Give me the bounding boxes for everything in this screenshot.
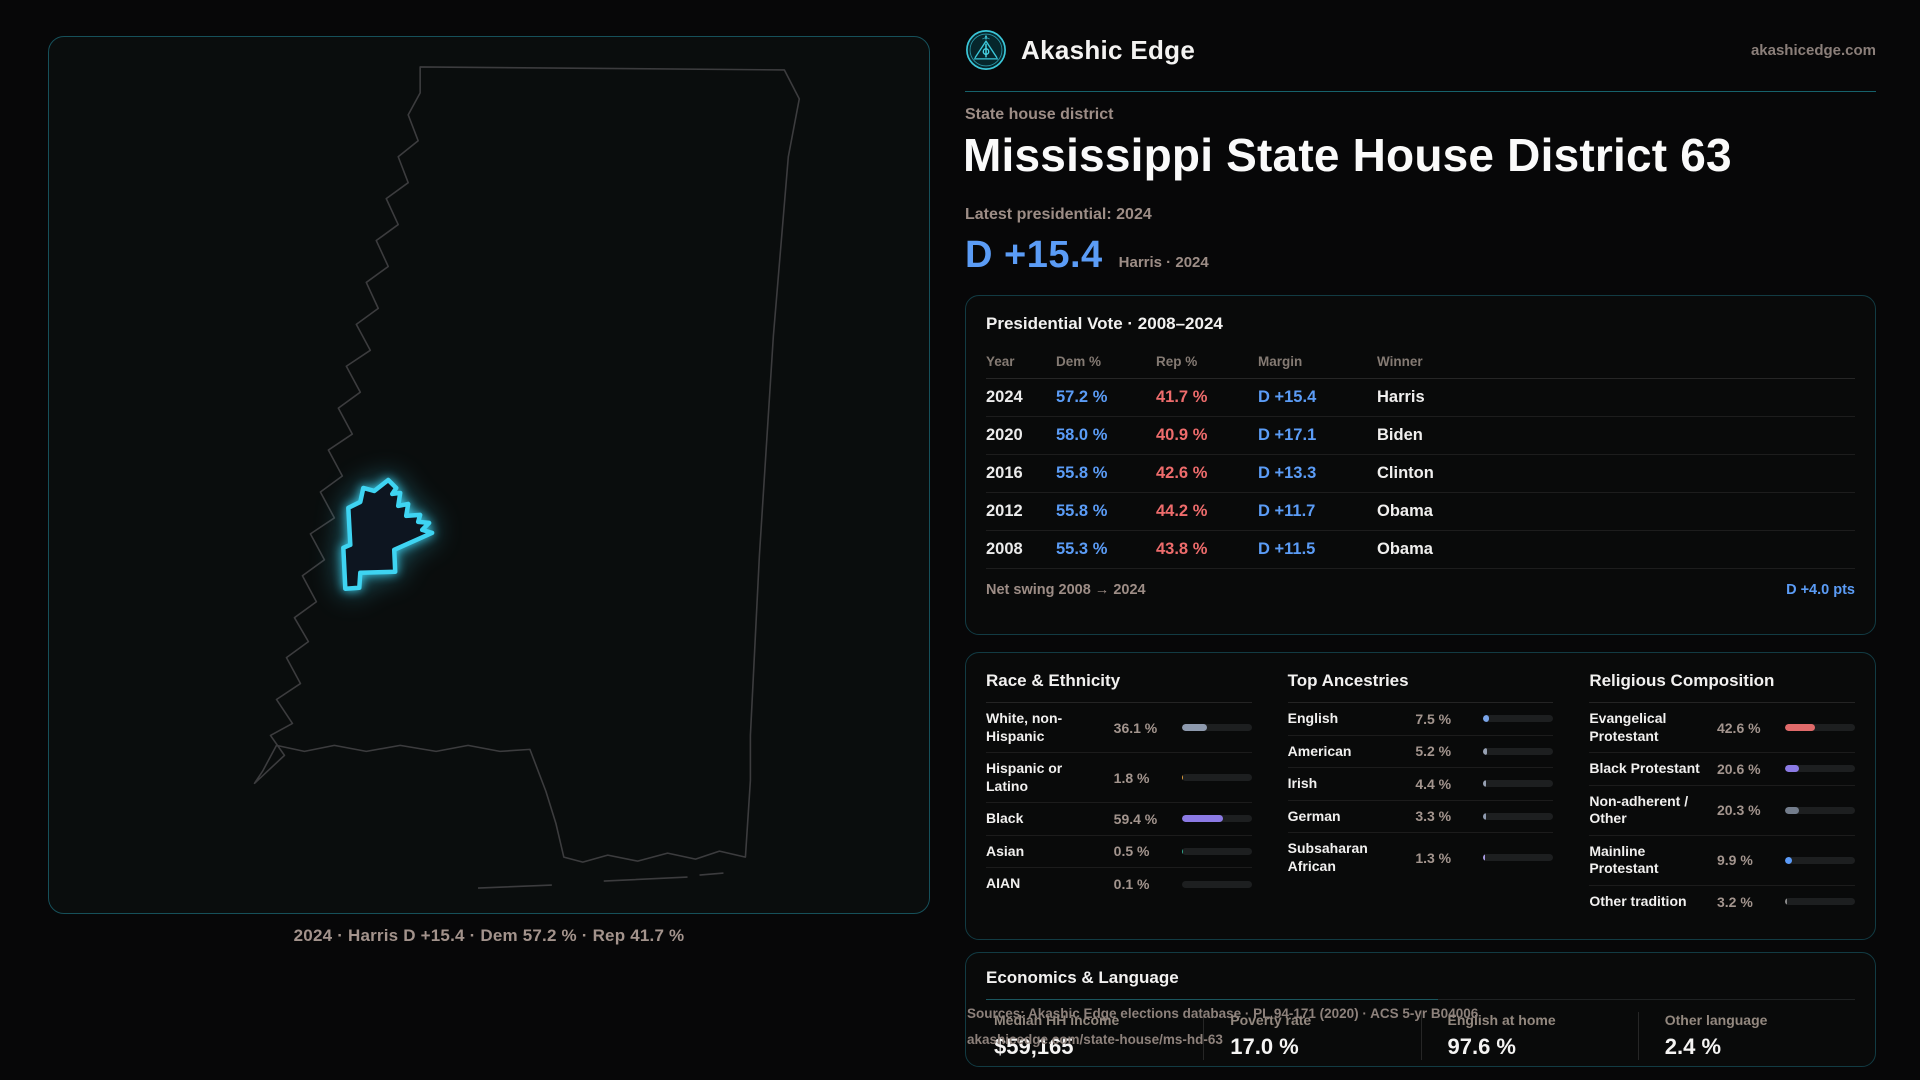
col-winner: Winner	[1377, 354, 1855, 369]
demo-row: AIAN 0.1 %	[986, 868, 1252, 900]
table-row: 2008 55.3 % 43.8 % D +11.5 Obama	[986, 531, 1855, 569]
table-row: 2024 57.2 % 41.7 % D +15.4 Harris	[986, 379, 1855, 417]
stat-english-at-home: English at home 97.6 %	[1421, 1012, 1638, 1060]
demo-label: American	[1288, 743, 1406, 761]
demo-bar	[1785, 857, 1855, 864]
demo-value: 0.1 %	[1114, 876, 1172, 892]
religious-composition-section: Religious Composition Evangelical Protes…	[1589, 671, 1855, 918]
rep-cell: 44.2 %	[1156, 502, 1258, 521]
table-row: 2012 55.8 % 44.2 % D +11.7 Obama	[986, 493, 1855, 531]
demo-bar	[1785, 765, 1855, 772]
demo-row: Black 59.4 %	[986, 803, 1252, 836]
year-cell: 2024	[986, 388, 1056, 407]
year-cell: 2012	[986, 502, 1056, 521]
rep-cell: 40.9 %	[1156, 426, 1258, 445]
demo-bar	[1785, 724, 1855, 731]
margin-cell: D +11.7	[1258, 502, 1377, 521]
demo-label: Subsaharan African	[1288, 840, 1406, 875]
winner-cell: Biden	[1377, 426, 1855, 445]
sources-permalink[interactable]: akashicedge.com/state-house/ms-hd-63	[967, 1032, 1223, 1047]
demo-value: 3.2 %	[1717, 894, 1775, 910]
demo-row: American 5.2 %	[1288, 736, 1554, 769]
demo-row: Irish 4.4 %	[1288, 768, 1554, 801]
demo-label: AIAN	[986, 875, 1104, 893]
demo-value: 1.8 %	[1114, 770, 1172, 786]
district-map-panel	[48, 36, 930, 914]
dem-cell: 55.8 %	[1056, 464, 1156, 483]
winner-cell: Obama	[1377, 540, 1855, 559]
col-year: Year	[986, 354, 1056, 369]
margin-cell: D +13.3	[1258, 464, 1377, 483]
demo-label: Irish	[1288, 775, 1406, 793]
presidential-vote-card: Presidential Vote · 2008–2024 Year Dem %…	[965, 295, 1876, 635]
demo-label: Black Protestant	[1589, 760, 1707, 778]
table-row: 2016 55.8 % 42.6 % D +13.3 Clinton	[986, 455, 1855, 493]
demo-value: 20.3 %	[1717, 802, 1775, 818]
top-ancestries-title: Top Ancestries	[1288, 671, 1554, 703]
demo-label: Black	[986, 810, 1104, 828]
demo-value: 59.4 %	[1114, 811, 1172, 827]
rep-cell: 42.6 %	[1156, 464, 1258, 483]
demo-row: Evangelical Protestant 42.6 %	[1589, 703, 1855, 753]
demo-row: Asian 0.5 %	[986, 836, 1252, 869]
margin-cell: D +15.4	[1258, 388, 1377, 407]
demo-bar	[1785, 898, 1855, 905]
headline-margin-context: Harris · 2024	[1119, 254, 1209, 271]
margin-cell: D +17.1	[1258, 426, 1377, 445]
col-margin: Margin	[1258, 354, 1377, 369]
demo-bar	[1785, 807, 1855, 814]
winner-cell: Obama	[1377, 502, 1855, 521]
demo-label: German	[1288, 808, 1406, 826]
mississippi-map	[49, 37, 929, 913]
demo-value: 1.3 %	[1415, 850, 1473, 866]
akashic-edge-logo-icon[interactable]	[965, 29, 1007, 71]
demo-row: German 3.3 %	[1288, 801, 1554, 834]
demo-bar	[1182, 724, 1252, 731]
page-title: Mississippi State House District 63	[963, 128, 1874, 182]
demo-label: English	[1288, 710, 1406, 728]
economics-language-title: Economics & Language	[986, 968, 1855, 988]
headline-margin-value: D +15.4	[965, 234, 1103, 277]
headline-margin-row: D +15.4 Harris · 2024	[965, 234, 1209, 277]
rep-cell: 43.8 %	[1156, 540, 1258, 559]
demo-row: Non-adherent / Other 20.3 %	[1589, 786, 1855, 836]
header: Akashic Edge akashicedge.com	[965, 28, 1876, 72]
demo-value: 5.2 %	[1415, 743, 1473, 759]
demo-value: 9.9 %	[1717, 852, 1775, 868]
map-caption: 2024 · Harris D +15.4 · Dem 57.2 % · Rep…	[48, 926, 930, 946]
religious-composition-title: Religious Composition	[1589, 671, 1855, 703]
demo-row: Subsaharan African 1.3 %	[1288, 833, 1554, 882]
state-outline	[255, 67, 800, 862]
demo-bar	[1483, 748, 1553, 755]
rep-cell: 41.7 %	[1156, 388, 1258, 407]
stat-poverty-rate: Poverty rate 17.0 %	[1203, 1012, 1420, 1060]
demographics-card: Race & Ethnicity White, non-Hispanic 36.…	[965, 652, 1876, 940]
eyebrow-label: State house district	[965, 106, 1113, 124]
economics-language-card: Economics & Language Median HH income $5…	[965, 952, 1876, 1067]
presidential-vote-title: Presidential Vote · 2008–2024	[986, 314, 1855, 334]
demo-row: Other tradition 3.2 %	[1589, 886, 1855, 918]
demo-row: Black Protestant 20.6 %	[1589, 753, 1855, 786]
margin-cell: D +11.5	[1258, 540, 1377, 559]
stat-value: 17.0 %	[1230, 1034, 1420, 1060]
col-rep: Rep %	[1156, 354, 1258, 369]
demo-bar	[1182, 815, 1252, 822]
demo-label: Other tradition	[1589, 893, 1707, 911]
table-header: Year Dem % Rep % Margin Winner	[986, 348, 1855, 379]
demo-bar	[1182, 848, 1252, 855]
latest-presidential-label: Latest presidential: 2024	[965, 206, 1152, 224]
page: 2024 · Harris D +15.4 · Dem 57.2 % · Rep…	[0, 0, 1920, 1080]
dem-cell: 58.0 %	[1056, 426, 1156, 445]
demo-value: 42.6 %	[1717, 720, 1775, 736]
gulf-islands	[478, 873, 723, 888]
net-swing-row: Net swing 2008 → 2024 D +4.0 pts	[986, 569, 1855, 611]
demo-row: Hispanic or Latino 1.8 %	[986, 753, 1252, 803]
demo-bar	[1483, 854, 1553, 861]
district-63-shape[interactable]	[343, 480, 432, 589]
demo-bar	[1483, 780, 1553, 787]
dem-cell: 55.8 %	[1056, 502, 1156, 521]
demo-row: White, non-Hispanic 36.1 %	[986, 703, 1252, 753]
demo-bar	[1182, 774, 1252, 781]
demo-bar	[1483, 813, 1553, 820]
race-ethnicity-title: Race & Ethnicity	[986, 671, 1252, 703]
year-cell: 2016	[986, 464, 1056, 483]
brand-name: Akashic Edge	[1021, 35, 1195, 66]
winner-cell: Clinton	[1377, 464, 1855, 483]
brand-domain-link[interactable]: akashicedge.com	[1751, 42, 1876, 59]
demo-value: 4.4 %	[1415, 776, 1473, 792]
demo-value: 3.3 %	[1415, 808, 1473, 824]
stat-label: Other language	[1665, 1012, 1855, 1028]
economics-divider	[986, 999, 1855, 1000]
demo-label: Hispanic or Latino	[986, 760, 1104, 795]
winner-cell: Harris	[1377, 388, 1855, 407]
top-ancestries-section: Top Ancestries English 7.5 % American 5.…	[1288, 671, 1554, 918]
col-dem: Dem %	[1056, 354, 1156, 369]
demo-value: 7.5 %	[1415, 711, 1473, 727]
demo-value: 0.5 %	[1114, 843, 1172, 859]
race-ethnicity-section: Race & Ethnicity White, non-Hispanic 36.…	[986, 671, 1252, 918]
demo-label: White, non-Hispanic	[986, 710, 1104, 745]
net-swing-label: Net swing 2008 → 2024	[986, 582, 1146, 598]
stat-other-language: Other language 2.4 %	[1638, 1012, 1855, 1060]
demo-value: 36.1 %	[1114, 720, 1172, 736]
stat-value: 2.4 %	[1665, 1034, 1855, 1060]
demo-bar	[1182, 881, 1252, 888]
demo-label: Non-adherent / Other	[1589, 793, 1707, 828]
dem-cell: 55.3 %	[1056, 540, 1156, 559]
stat-label: Median HH income	[994, 1012, 1203, 1028]
stat-label: English at home	[1448, 1012, 1638, 1028]
demo-row: Mainline Protestant 9.9 %	[1589, 836, 1855, 886]
demo-label: Asian	[986, 843, 1104, 861]
year-cell: 2008	[986, 540, 1056, 559]
demo-label: Evangelical Protestant	[1589, 710, 1707, 745]
year-cell: 2020	[986, 426, 1056, 445]
demo-bar	[1483, 715, 1553, 722]
demo-value: 20.6 %	[1717, 761, 1775, 777]
stat-label: Poverty rate	[1230, 1012, 1420, 1028]
table-row: 2020 58.0 % 40.9 % D +17.1 Biden	[986, 417, 1855, 455]
demo-row: English 7.5 %	[1288, 703, 1554, 736]
demo-label: Mainline Protestant	[1589, 843, 1707, 878]
net-swing-value: D +4.0 pts	[1786, 582, 1855, 598]
stat-value: 97.6 %	[1448, 1034, 1638, 1060]
dem-cell: 57.2 %	[1056, 388, 1156, 407]
header-divider	[965, 91, 1876, 92]
